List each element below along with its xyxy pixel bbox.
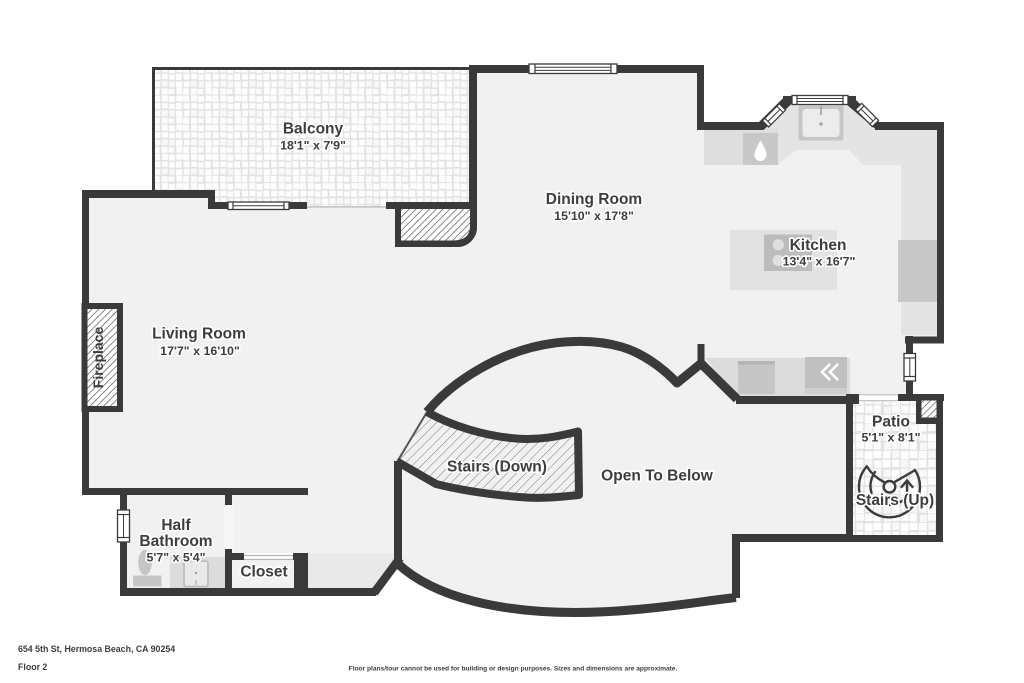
- svg-text:Closet: Closet: [240, 564, 287, 581]
- svg-text:Half: Half: [161, 517, 191, 534]
- svg-text:Floor 2: Floor 2: [18, 662, 47, 672]
- svg-text:Floor plans/tour cannot be use: Floor plans/tour cannot be used for buil…: [349, 666, 678, 673]
- svg-text:Living Room: Living Room: [152, 326, 246, 343]
- svg-text:Open To Below: Open To Below: [601, 468, 714, 485]
- svg-text:17'7" x 16'10": 17'7" x 16'10": [160, 344, 240, 358]
- svg-text:18'1" x 7'9": 18'1" x 7'9": [280, 139, 346, 153]
- svg-text:5'1" x 8'1": 5'1" x 8'1": [862, 431, 921, 445]
- svg-text:Stairs (Down): Stairs (Down): [447, 459, 547, 476]
- svg-text:654 5th St, Hermosa Beach, CA: 654 5th St, Hermosa Beach, CA 90254: [18, 644, 175, 654]
- svg-text:15'10" x 17'8": 15'10" x 17'8": [554, 209, 634, 223]
- svg-text:Patio: Patio: [872, 414, 910, 431]
- svg-text:Fireplace: Fireplace: [90, 327, 106, 389]
- svg-text:13'4" x 16'7": 13'4" x 16'7": [783, 255, 856, 269]
- svg-text:Dining Room: Dining Room: [546, 191, 642, 208]
- svg-text:5'7" x 5'4": 5'7" x 5'4": [147, 551, 206, 565]
- svg-text:Kitchen: Kitchen: [790, 237, 847, 254]
- svg-text:Balcony: Balcony: [283, 121, 344, 138]
- svg-text:Bathroom: Bathroom: [139, 533, 212, 550]
- svg-text:Stairs (Up): Stairs (Up): [856, 492, 934, 509]
